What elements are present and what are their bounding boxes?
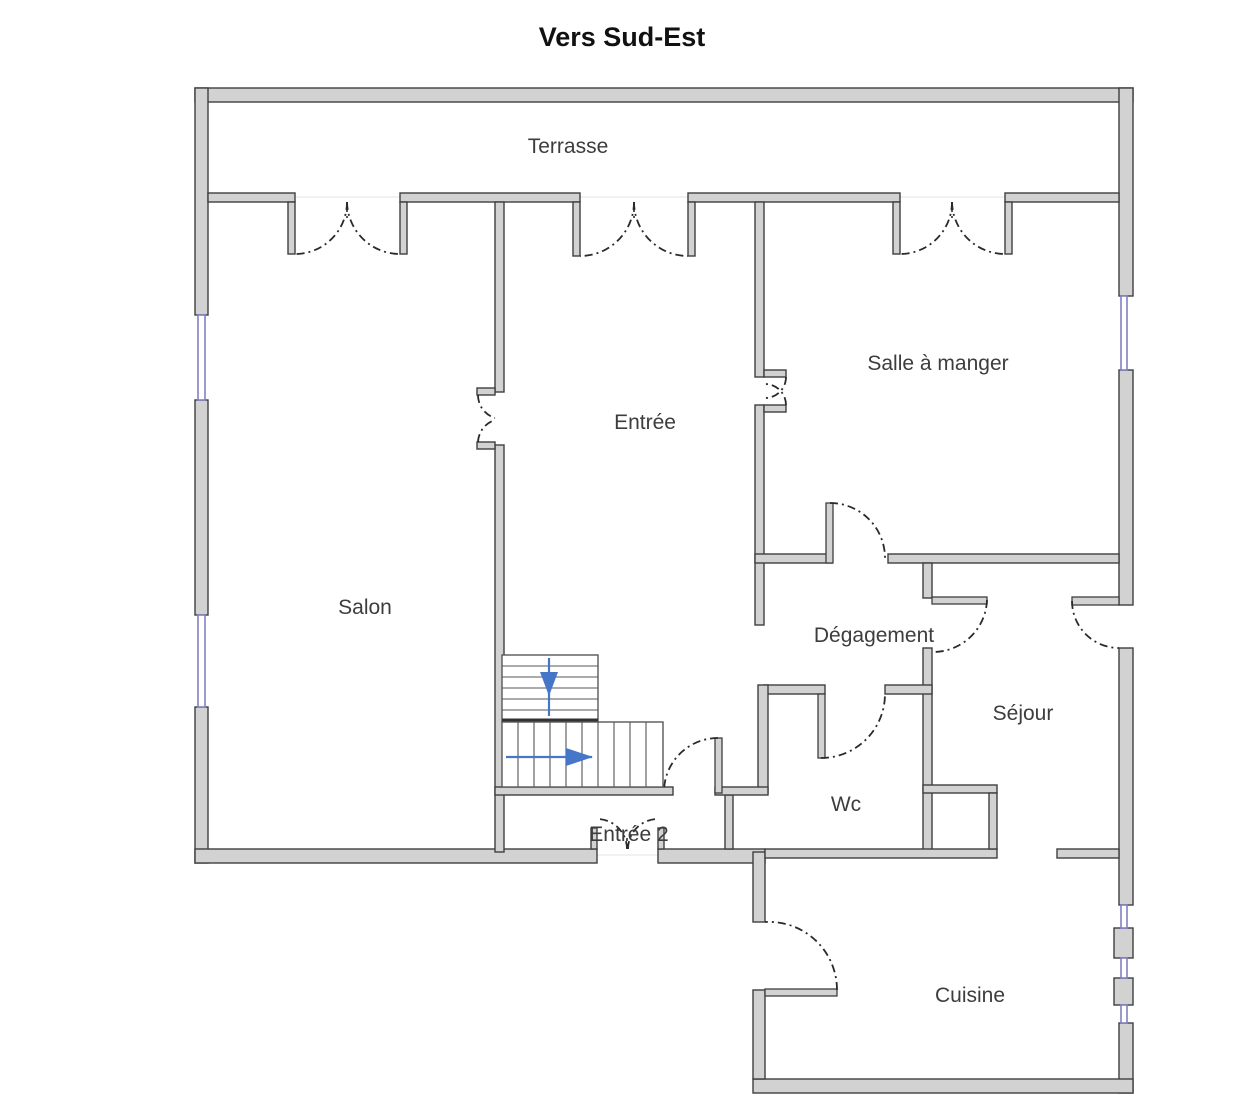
wall-segment [764, 685, 825, 694]
wall-segment [758, 685, 768, 793]
room-label-sejour: Séjour [993, 702, 1054, 725]
wall-segment [400, 193, 580, 202]
wall-segment [1119, 648, 1133, 905]
wall-segment [1119, 370, 1133, 605]
room-label-salle-a-manger: Salle à manger [867, 352, 1008, 375]
wall-segment [885, 685, 932, 694]
room-label-degagement: Dégagement [814, 624, 934, 647]
door-swing-arc [478, 420, 495, 442]
room-label-wc: Wc [831, 793, 861, 816]
french-door-entree [580, 202, 688, 256]
door-leaf [765, 989, 837, 996]
wall-segment [195, 88, 1133, 102]
door-leaf [818, 694, 825, 758]
wall-segment [195, 849, 597, 863]
wall-segment [1005, 193, 1119, 202]
wall-segment [725, 795, 733, 849]
door-swing-arc [821, 694, 885, 758]
outer-walls [195, 88, 1133, 1093]
wall-segment [753, 1079, 1133, 1093]
french-door-salon [295, 202, 400, 254]
door-leaf [1072, 597, 1119, 605]
room-label-terrasse: Terrasse [528, 135, 609, 158]
floor-plan-drawing: Vers Sud-Est [0, 0, 1248, 1118]
door-jamb [1005, 202, 1012, 254]
closet-wall [989, 793, 997, 849]
window-icon [1121, 958, 1127, 978]
wall-segment [195, 400, 208, 615]
room-label-cuisine: Cuisine [935, 984, 1005, 1007]
page-title: Vers Sud-Est [539, 22, 706, 52]
door-swing-arc [1072, 601, 1119, 648]
door-leaf [932, 597, 987, 604]
wall-segment [495, 787, 673, 795]
wall-segment [688, 193, 900, 202]
window-icon [198, 615, 205, 707]
door-swing-arc [295, 202, 347, 254]
door-jamb [400, 202, 407, 254]
door-swing-arc [765, 922, 837, 990]
wall-segment [753, 852, 765, 922]
wall-segment [1057, 849, 1119, 858]
wall-segment [1114, 928, 1133, 958]
door-leaf [826, 503, 833, 563]
wall-segment [495, 202, 504, 392]
windows [198, 296, 1127, 1023]
door-swing-arc [933, 600, 987, 652]
window-icon [198, 315, 205, 400]
wall-segment [888, 554, 1119, 563]
window-icon [1121, 1005, 1127, 1023]
room-label-entree: Entrée [614, 411, 676, 434]
pass-through-jamb [764, 405, 786, 412]
wall-segment [753, 990, 765, 1079]
wall-segment [755, 554, 832, 563]
terrace-wall [208, 193, 1119, 256]
room-labels: Terrasse Salle à manger Entrée Salon Dég… [338, 135, 1053, 1007]
wall-segment [1119, 88, 1133, 296]
wall-segment [755, 405, 764, 625]
wall-segment [715, 787, 768, 795]
door-swing-arc [634, 202, 688, 256]
door-swing-arc [952, 202, 1005, 254]
doors [591, 503, 1119, 996]
pass-through-jamb [477, 388, 495, 395]
window-icon [1121, 905, 1127, 928]
wall-segment [658, 849, 765, 863]
door-swing-arc [478, 395, 495, 418]
door-jamb [573, 202, 580, 256]
door-swing-arc [830, 503, 885, 558]
room-label-entree2: Entrée 2 [589, 823, 668, 846]
pass-through-jamb [764, 370, 786, 377]
wall-segment [923, 648, 932, 852]
french-door-salle-a-manger [900, 202, 1005, 254]
wall-segment [923, 563, 932, 598]
wall-segment [755, 202, 764, 377]
wall-segment [195, 88, 208, 315]
closet-wall [923, 785, 997, 793]
door-jamb [893, 202, 900, 254]
door-swing-arc [664, 738, 718, 790]
wall-segment [208, 193, 295, 202]
pass-through-jamb [477, 442, 495, 449]
wall-segment [765, 849, 997, 858]
door-jamb [288, 202, 295, 254]
wall-segment [1114, 978, 1133, 1005]
wall-segment [195, 707, 208, 863]
door-swing-arc [347, 202, 400, 254]
door-jamb [688, 202, 695, 256]
window-icon [1121, 296, 1127, 370]
floor-plan-page: Vers Sud-Est [0, 0, 1248, 1118]
staircase [502, 655, 663, 787]
door-leaf [715, 738, 722, 793]
room-label-salon: Salon [338, 596, 392, 619]
door-swing-arc [580, 202, 634, 256]
door-swing-arc [900, 202, 952, 254]
